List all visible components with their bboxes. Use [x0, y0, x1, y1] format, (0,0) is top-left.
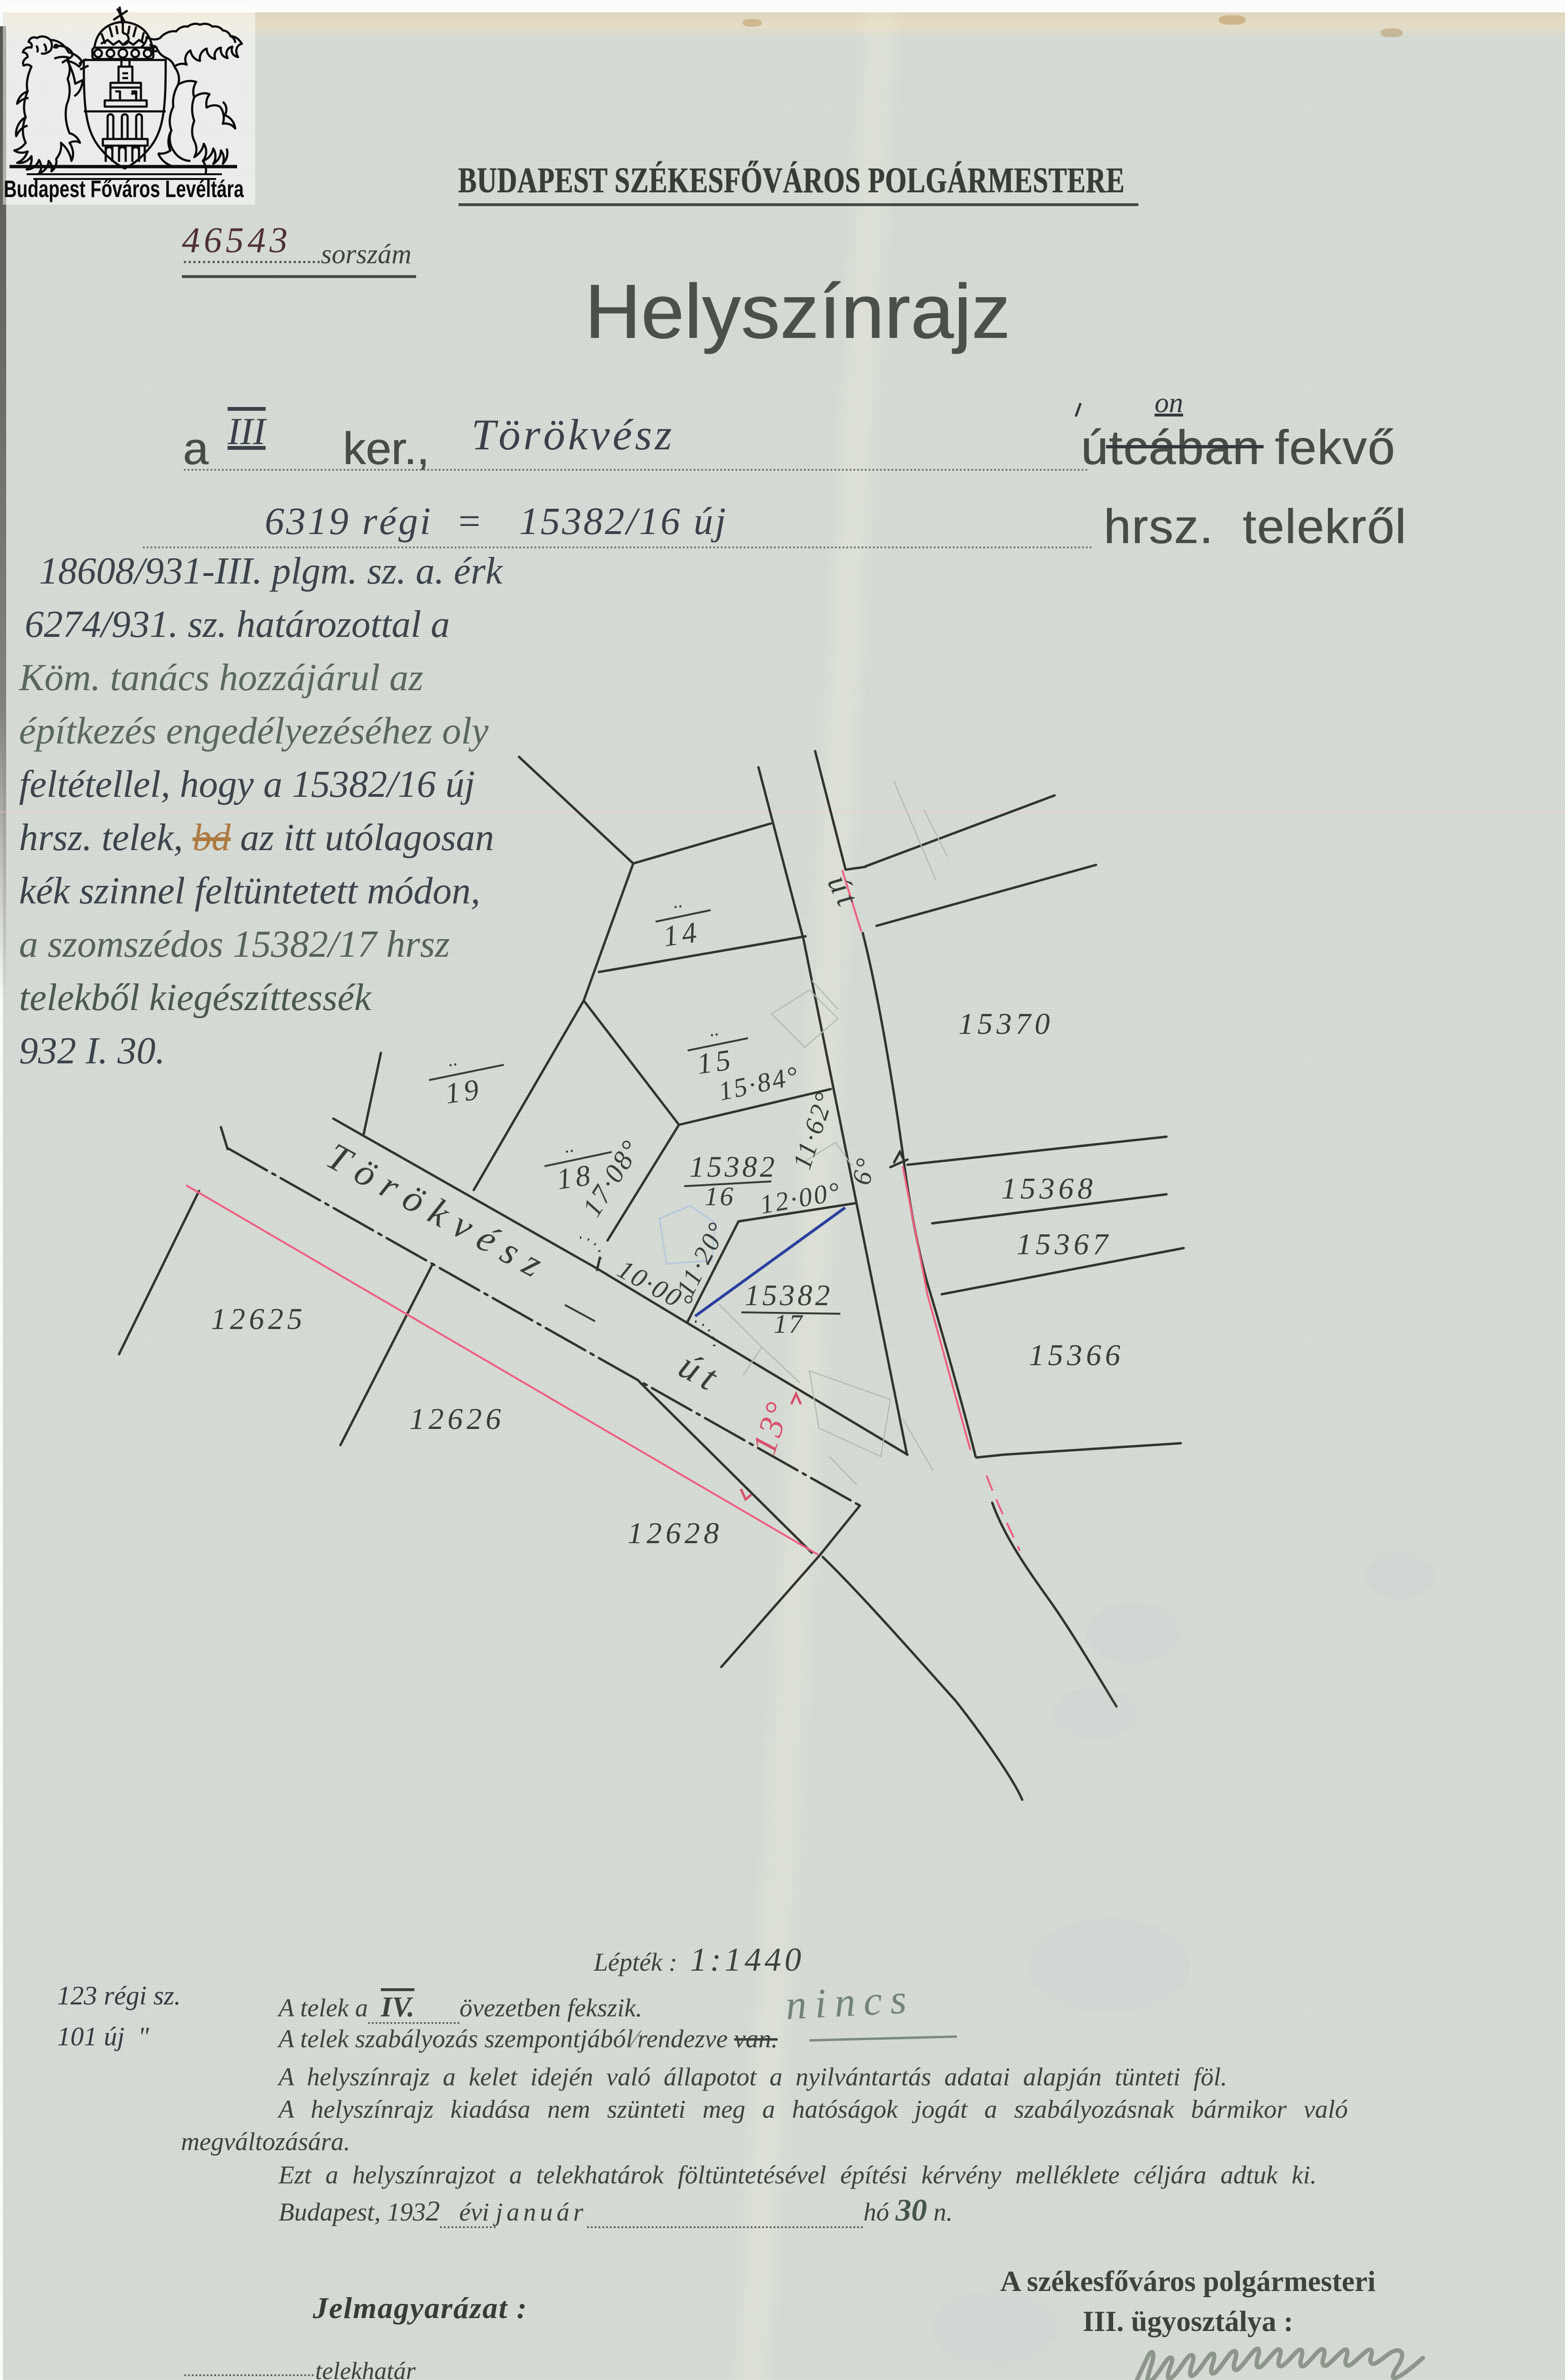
- svg-text:15368: 15368: [1001, 1171, 1096, 1205]
- svg-text:12626: 12626: [409, 1402, 505, 1436]
- svg-text:12625: 12625: [211, 1302, 306, 1336]
- svg-text:11·62°: 11·62°: [787, 1088, 840, 1173]
- svg-text:13°: 13°: [745, 1396, 797, 1459]
- svg-text:út: út: [672, 1344, 729, 1401]
- svg-text:11·20°: 11·20°: [670, 1217, 733, 1301]
- svg-text:17: 17: [774, 1309, 804, 1339]
- svg-text:15367: 15367: [1017, 1227, 1112, 1261]
- svg-text:..: ..: [563, 1134, 575, 1157]
- svg-text:Törökvész: Törökvész: [319, 1135, 558, 1290]
- svg-text:..: ..: [447, 1048, 459, 1071]
- svg-text:—: —: [557, 1283, 607, 1337]
- svg-text:15382: 15382: [745, 1279, 833, 1312]
- svg-text:16: 16: [705, 1182, 735, 1211]
- svg-text:..: ..: [708, 1018, 720, 1041]
- svg-text:15382: 15382: [689, 1151, 778, 1183]
- svg-text:út: út: [821, 870, 867, 915]
- svg-text:15366: 15366: [1029, 1338, 1124, 1372]
- svg-text:Budapest Főváros Levéltára: Budapest Főváros Levéltára: [4, 176, 244, 202]
- svg-text:..: ..: [671, 890, 684, 912]
- svg-text:15370: 15370: [958, 1007, 1054, 1041]
- svg-text:12628: 12628: [628, 1516, 723, 1550]
- svg-text:14: 14: [661, 916, 703, 953]
- svg-text:6°: 6°: [847, 1154, 881, 1188]
- svg-text:19: 19: [443, 1073, 485, 1110]
